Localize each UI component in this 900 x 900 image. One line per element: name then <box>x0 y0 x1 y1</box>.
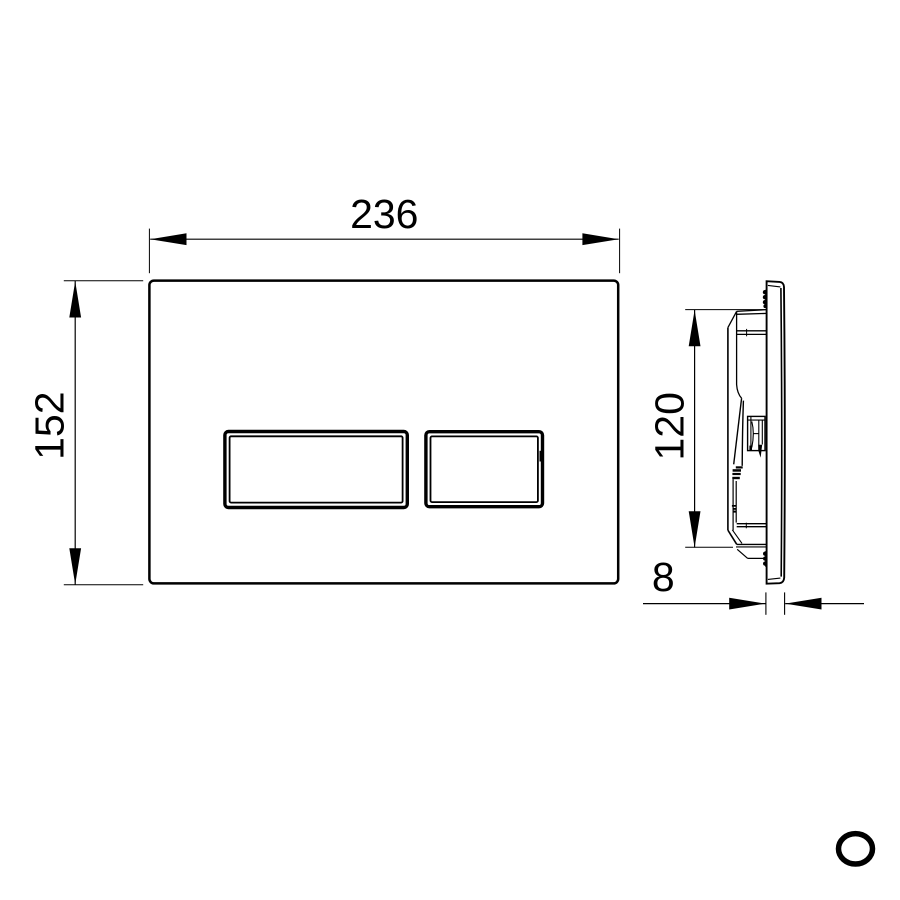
svg-text:152: 152 <box>27 391 73 459</box>
svg-text:236: 236 <box>350 191 418 237</box>
svg-text:8: 8 <box>652 554 675 600</box>
svg-text:120: 120 <box>646 392 692 460</box>
